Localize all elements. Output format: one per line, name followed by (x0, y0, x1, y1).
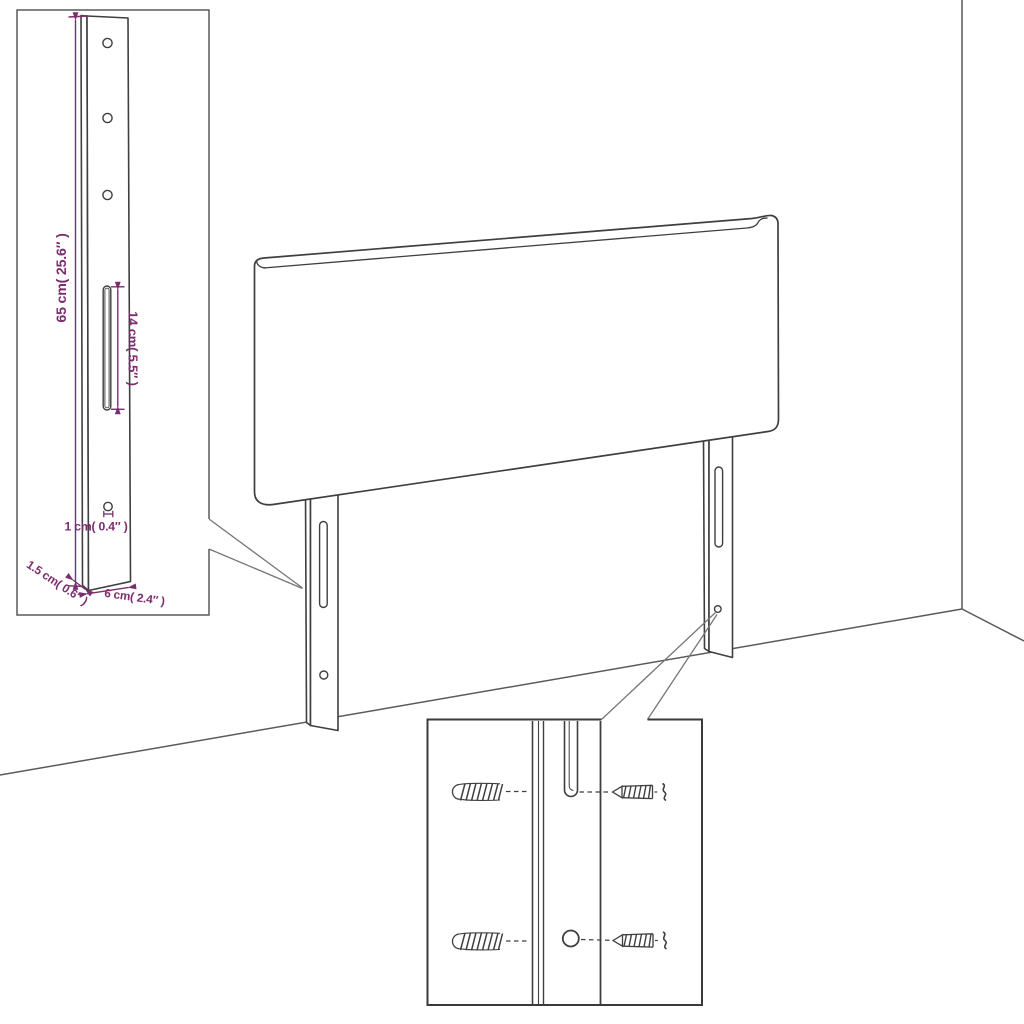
height-tick-top (69, 16, 89, 17)
hole-dimension-label: 1 cm( 0.4″ ) (65, 520, 128, 534)
hardware-inset (428, 720, 703, 1006)
product-diagram-canvas: 65 cm( 25.6″ ) 14 cm( 5.5″ ) 1 cm( 0.4″ … (0, 0, 1024, 1024)
left-leg-front-face (311, 477, 339, 731)
bracket-drawing (81, 16, 131, 591)
height-dimension-label: 65 cm( 25.6″ ) (54, 233, 70, 323)
headboard-assembly-diagram: 65 cm( 25.6″ ) 14 cm( 5.5″ ) 1 cm( 0.4″ … (0, 0, 1024, 1024)
right-leg (704, 418, 733, 658)
left-leg (306, 477, 339, 731)
slot-dimension-label: 14 cm( 5.5″ ) (126, 311, 141, 385)
bracket-inset: 65 cm( 25.6″ ) 14 cm( 5.5″ ) 1 cm( 0.4″ … (17, 10, 209, 615)
